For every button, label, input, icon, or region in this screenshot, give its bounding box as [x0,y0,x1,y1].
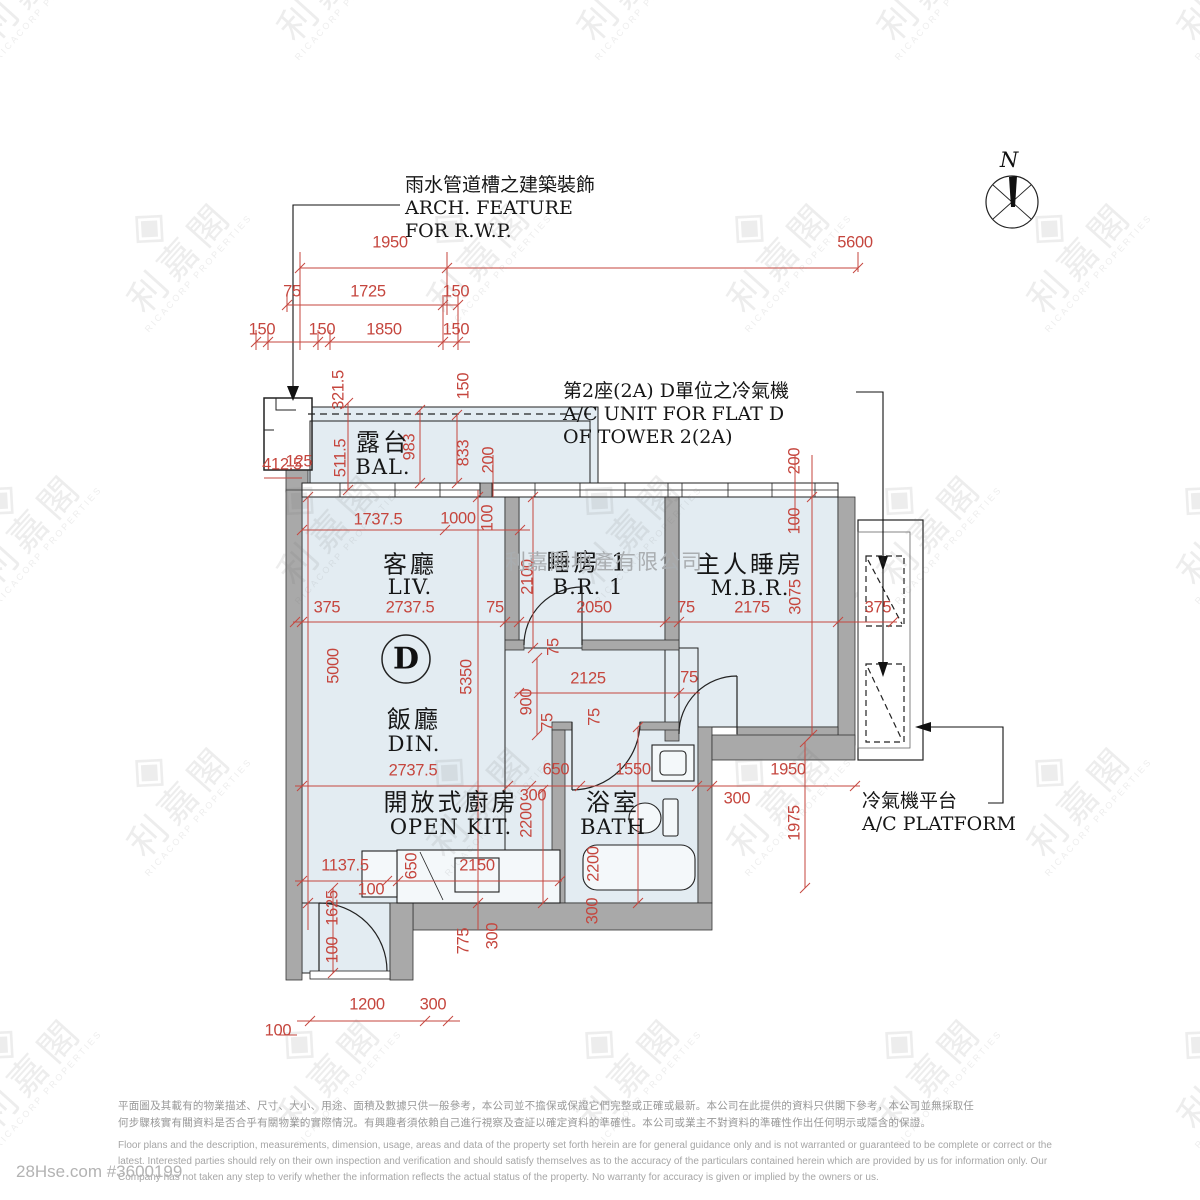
disclaimer-en-line3: Company has not taken any step to verify… [118,1172,879,1183]
toilet [629,803,661,833]
north-arrow-icon [986,176,1038,228]
company-watermark: 利嘉閣地產有限公司 [505,546,703,576]
disclaimer-en-line1: Floor plans and the description, measure… [118,1140,1052,1151]
stage: ◈利嘉閣RICACORP PROPERTIES◈利嘉閣RICACORP PROP… [0,0,1200,1200]
floor-plan-drawing [0,0,1200,1200]
disclaimer-cn-line2: 何步驟核實有關資料是否合乎有關物業的實際情況。有興趣者須依賴自己進行視察及查証以… [118,1115,931,1130]
windows [302,483,838,497]
sink [455,858,499,892]
bathtub [583,845,695,890]
disclaimer-en-line2: latest. Interested parties should rely o… [118,1156,1047,1167]
rwp-feature [264,398,312,470]
disclaimer-cn-line1: 平面圖及其載有的物業描述、尺寸、大小、用途、面積及數據只供一般參考，本公司並不擔… [118,1098,974,1113]
ac-platform-structure [858,520,923,760]
floorplan-page: { "page": { "credit": "28Hse.com #360019… [0,0,1200,1200]
site-credit: 28Hse.com #3600199 [16,1162,182,1182]
